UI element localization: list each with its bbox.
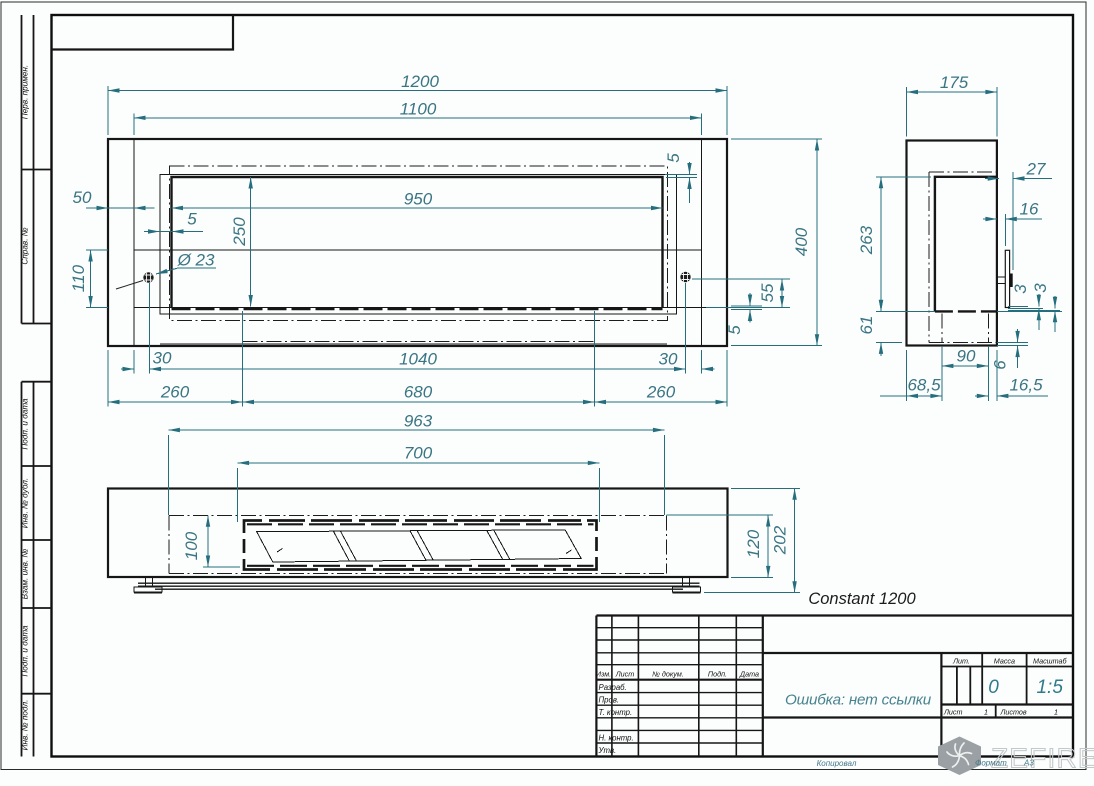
svg-text:Формат: Формат — [975, 759, 1007, 768]
svg-text:3: 3 — [1031, 283, 1050, 293]
svg-text:1: 1 — [984, 707, 988, 716]
svg-text:А3: А3 — [1023, 759, 1034, 768]
svg-text:Лист: Лист — [615, 670, 635, 679]
svg-text:90: 90 — [957, 347, 976, 366]
svg-text:175: 175 — [940, 73, 969, 92]
svg-text:Утв.: Утв. — [598, 746, 617, 755]
svg-text:Подп. и дата: Подп. и дата — [21, 625, 30, 677]
svg-text:Лист: Лист — [943, 707, 963, 716]
svg-text:Подп.: Подп. — [708, 670, 727, 679]
svg-text:1200: 1200 — [401, 72, 439, 91]
svg-text:202: 202 — [771, 525, 790, 555]
svg-text:263: 263 — [857, 225, 876, 255]
svg-text:61: 61 — [857, 316, 876, 335]
svg-text:Ошибка: нет ссылки: Ошибка: нет ссылки — [785, 692, 932, 709]
svg-text:1040: 1040 — [399, 350, 437, 369]
svg-text:1:5: 1:5 — [1036, 677, 1063, 698]
svg-text:Масштаб: Масштаб — [1033, 657, 1068, 666]
svg-text:30: 30 — [153, 349, 172, 368]
svg-text:6: 6 — [991, 360, 1010, 370]
svg-text:16,5: 16,5 — [1009, 376, 1043, 395]
svg-text:Подп. и дата: Подп. и дата — [21, 398, 30, 450]
svg-text:Инв. № подл.: Инв. № подл. — [21, 700, 30, 751]
svg-text:0: 0 — [988, 677, 999, 698]
svg-text:700: 700 — [404, 444, 433, 463]
svg-text:5: 5 — [187, 210, 197, 229]
svg-text:Дата: Дата — [739, 670, 759, 679]
svg-text:100: 100 — [182, 531, 201, 560]
svg-text:55: 55 — [758, 283, 777, 302]
svg-text:1100: 1100 — [400, 100, 437, 119]
svg-text:260: 260 — [160, 383, 190, 402]
svg-text:16: 16 — [1020, 200, 1039, 219]
svg-text:Н. контр.: Н. контр. — [599, 734, 634, 743]
svg-text:Листов: Листов — [1000, 707, 1027, 716]
svg-text:110: 110 — [69, 264, 88, 292]
svg-text:260: 260 — [646, 383, 676, 402]
svg-text:27: 27 — [1026, 160, 1046, 179]
svg-text:250: 250 — [230, 217, 249, 247]
svg-text:Ø 23: Ø 23 — [177, 251, 215, 270]
svg-text:Перв. примен.: Перв. примен. — [21, 65, 30, 119]
svg-text:963: 963 — [404, 412, 433, 431]
svg-text:Лит.: Лит. — [952, 657, 970, 666]
svg-text:30: 30 — [659, 350, 678, 369]
svg-text:3: 3 — [1011, 284, 1030, 294]
svg-text:Изм.: Изм. — [596, 670, 611, 679]
svg-text:950: 950 — [404, 190, 433, 209]
svg-text:Справ. №: Справ. № — [21, 227, 30, 264]
svg-text:Инв. № дубл.: Инв. № дубл. — [21, 478, 30, 528]
svg-text:50: 50 — [73, 188, 92, 207]
svg-text:№ докум.: № докум. — [652, 670, 684, 679]
svg-text:1: 1 — [1054, 707, 1058, 716]
svg-text:680: 680 — [404, 383, 433, 402]
svg-text:Взам. инв. №: Взам. инв. № — [21, 549, 30, 600]
svg-text:Масса: Масса — [994, 657, 1015, 666]
svg-text:Разраб.: Разраб. — [599, 683, 627, 692]
svg-text:68,5: 68,5 — [907, 376, 941, 395]
svg-text:Constant 1200: Constant 1200 — [808, 590, 916, 608]
svg-text:Копировал: Копировал — [817, 759, 857, 768]
svg-text:Т. контр.: Т. контр. — [599, 708, 633, 717]
svg-text:5: 5 — [725, 325, 744, 335]
svg-text:Пров.: Пров. — [599, 696, 620, 705]
svg-text:400: 400 — [792, 227, 811, 256]
svg-text:5: 5 — [664, 153, 683, 163]
svg-text:120: 120 — [744, 529, 763, 558]
